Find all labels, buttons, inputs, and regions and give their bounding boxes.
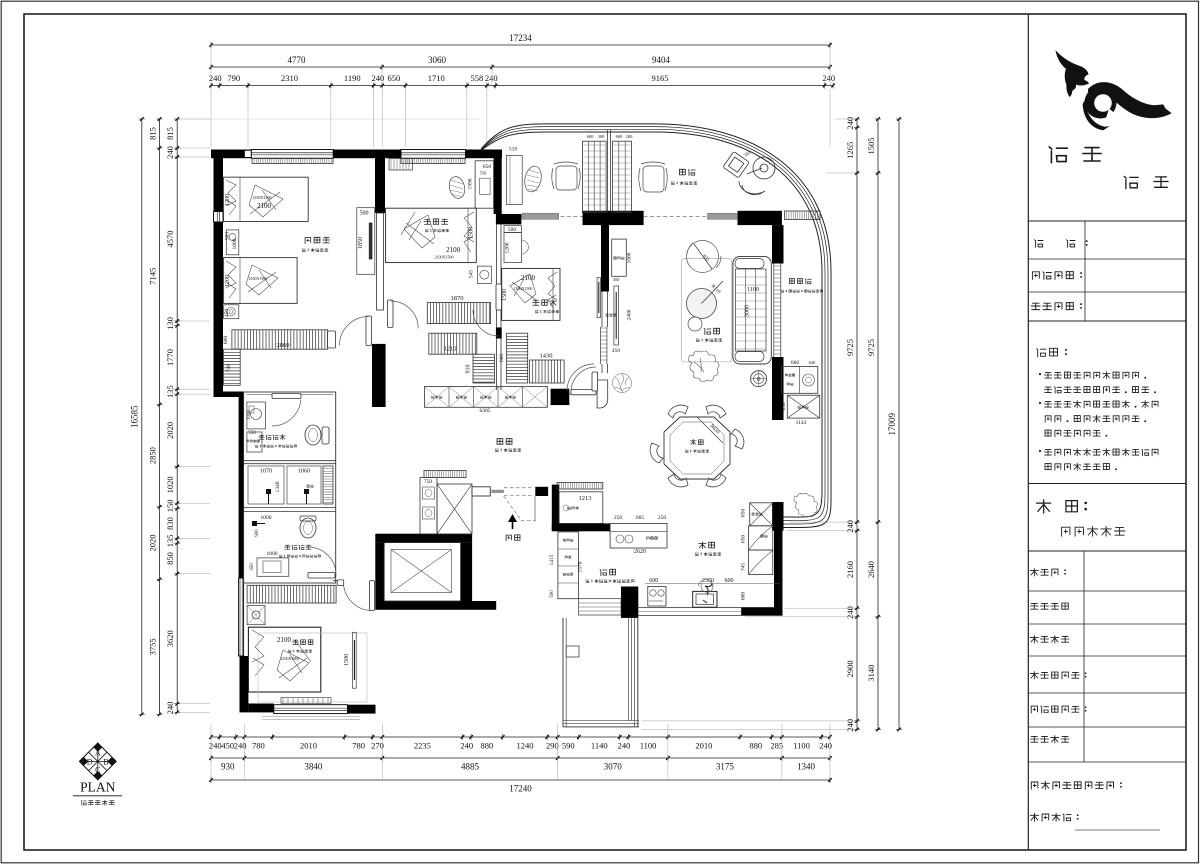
svg-text:135: 135 bbox=[165, 534, 175, 547]
svg-text:850: 850 bbox=[165, 552, 175, 565]
svg-text:685: 685 bbox=[636, 515, 645, 521]
svg-text:9404: 9404 bbox=[652, 55, 671, 65]
svg-text:17009: 17009 bbox=[887, 413, 897, 436]
svg-text:C: C bbox=[95, 766, 100, 775]
svg-text:2010: 2010 bbox=[300, 741, 317, 751]
svg-text:250: 250 bbox=[614, 515, 623, 521]
svg-text:17240: 17240 bbox=[509, 784, 532, 794]
svg-text:3140: 3140 bbox=[866, 665, 876, 682]
svg-text:500: 500 bbox=[508, 227, 517, 233]
svg-text:2100: 2100 bbox=[521, 274, 536, 282]
svg-text:1870: 1870 bbox=[451, 295, 464, 302]
svg-text:600: 600 bbox=[649, 578, 658, 584]
svg-text:1000: 1000 bbox=[267, 551, 278, 557]
svg-text:2860: 2860 bbox=[277, 342, 290, 349]
svg-text:2020: 2020 bbox=[148, 535, 158, 552]
svg-text:1340: 1340 bbox=[275, 481, 281, 492]
svg-text:2850: 2850 bbox=[148, 447, 158, 464]
svg-text:1500: 1500 bbox=[502, 289, 508, 301]
svg-text:3070: 3070 bbox=[604, 762, 623, 772]
svg-text:650: 650 bbox=[741, 535, 747, 544]
svg-text:1140: 1140 bbox=[591, 741, 608, 751]
svg-text:900: 900 bbox=[255, 529, 260, 537]
svg-text:740: 740 bbox=[226, 364, 232, 373]
svg-text:135: 135 bbox=[165, 385, 175, 398]
svg-text:2640: 2640 bbox=[866, 561, 876, 578]
svg-text:2100X1200: 2100X1200 bbox=[253, 195, 272, 200]
svg-text:240: 240 bbox=[618, 741, 631, 751]
svg-text:880: 880 bbox=[552, 503, 558, 512]
svg-text:16585: 16585 bbox=[130, 405, 140, 428]
svg-text:3620: 3620 bbox=[165, 630, 175, 647]
svg-text:240: 240 bbox=[372, 73, 385, 83]
svg-text:450: 450 bbox=[612, 348, 621, 354]
svg-text:1200: 1200 bbox=[225, 275, 231, 287]
svg-text:4885: 4885 bbox=[461, 762, 480, 772]
svg-text:1770: 1770 bbox=[165, 349, 175, 366]
svg-text:2100: 2100 bbox=[446, 246, 461, 254]
svg-text:450: 450 bbox=[221, 741, 234, 751]
svg-text:1100: 1100 bbox=[747, 287, 759, 293]
svg-text:600: 600 bbox=[499, 354, 505, 363]
svg-text:A: A bbox=[95, 749, 101, 758]
svg-text:650: 650 bbox=[387, 73, 400, 83]
svg-text:270: 270 bbox=[371, 741, 384, 751]
svg-text:780: 780 bbox=[352, 741, 365, 751]
svg-text:17234: 17234 bbox=[509, 33, 532, 43]
svg-text:1213: 1213 bbox=[579, 495, 592, 502]
svg-text:650: 650 bbox=[781, 402, 787, 411]
svg-text:1850: 1850 bbox=[358, 237, 364, 249]
svg-text:745: 745 bbox=[741, 563, 747, 572]
svg-text:2100X1800: 2100X1800 bbox=[281, 656, 300, 661]
svg-text:4570: 4570 bbox=[165, 231, 175, 248]
svg-text:1200: 1200 bbox=[505, 242, 511, 253]
svg-text:600: 600 bbox=[741, 592, 747, 601]
svg-text:2100: 2100 bbox=[257, 202, 272, 210]
svg-text:2620: 2620 bbox=[634, 549, 646, 555]
svg-text:2100X1500: 2100X1500 bbox=[514, 286, 533, 291]
svg-text:290: 290 bbox=[546, 741, 559, 751]
svg-text:6305: 6305 bbox=[480, 408, 491, 414]
svg-text:1500: 1500 bbox=[344, 654, 350, 666]
svg-text:1100: 1100 bbox=[793, 741, 810, 751]
svg-text:500: 500 bbox=[360, 211, 369, 217]
svg-text:650: 650 bbox=[741, 509, 747, 518]
svg-text:660: 660 bbox=[791, 360, 800, 366]
svg-text:500: 500 bbox=[550, 590, 555, 598]
svg-text:1000: 1000 bbox=[232, 238, 238, 249]
svg-text:1505: 1505 bbox=[866, 138, 876, 155]
svg-text:519: 519 bbox=[509, 147, 518, 153]
svg-text:930: 930 bbox=[221, 762, 235, 772]
svg-text:B: B bbox=[103, 758, 108, 767]
svg-text:240: 240 bbox=[485, 73, 498, 83]
svg-text:3840: 3840 bbox=[304, 762, 323, 772]
svg-text:1000: 1000 bbox=[247, 410, 252, 421]
svg-text:1200: 1200 bbox=[225, 194, 231, 206]
svg-text:1415: 1415 bbox=[549, 554, 555, 565]
svg-text:1100: 1100 bbox=[640, 741, 657, 751]
svg-text:1020: 1020 bbox=[165, 476, 175, 493]
svg-text:1143: 1143 bbox=[796, 420, 807, 426]
svg-text:1265: 1265 bbox=[845, 142, 855, 159]
svg-text:558: 558 bbox=[471, 73, 484, 83]
svg-text:1240: 1240 bbox=[516, 741, 533, 751]
svg-text:2900: 2900 bbox=[845, 660, 855, 677]
svg-text:790: 790 bbox=[227, 73, 240, 83]
svg-text:1430: 1430 bbox=[540, 353, 553, 360]
svg-text:3060: 3060 bbox=[428, 55, 447, 65]
svg-text:9725: 9725 bbox=[866, 339, 876, 356]
svg-text:285: 285 bbox=[770, 741, 783, 751]
svg-text:545: 545 bbox=[469, 270, 475, 279]
svg-text:240: 240 bbox=[460, 741, 473, 751]
svg-text:910: 910 bbox=[466, 365, 472, 374]
svg-text:2400: 2400 bbox=[627, 309, 633, 320]
svg-text:2100X1500: 2100X1500 bbox=[435, 255, 454, 260]
svg-text:450: 450 bbox=[224, 309, 230, 318]
svg-text:1070: 1070 bbox=[260, 469, 272, 475]
svg-text:2010: 2010 bbox=[695, 741, 712, 751]
svg-text:1000: 1000 bbox=[261, 515, 272, 521]
svg-text:2235: 2235 bbox=[414, 741, 431, 751]
svg-text:2100: 2100 bbox=[277, 636, 292, 644]
svg-text:750: 750 bbox=[424, 479, 433, 485]
svg-text:600: 600 bbox=[616, 134, 624, 139]
svg-text:7145: 7145 bbox=[148, 268, 158, 285]
svg-text:450: 450 bbox=[613, 277, 621, 282]
svg-text:830: 830 bbox=[165, 517, 175, 530]
svg-text:650: 650 bbox=[483, 164, 492, 170]
svg-text:1570: 1570 bbox=[578, 561, 584, 572]
svg-text:880: 880 bbox=[481, 741, 494, 751]
svg-text:150: 150 bbox=[165, 500, 175, 513]
svg-text:200: 200 bbox=[626, 134, 634, 139]
svg-text:2020: 2020 bbox=[165, 422, 175, 439]
svg-text:1990: 1990 bbox=[468, 178, 474, 189]
svg-text:815: 815 bbox=[148, 127, 158, 140]
svg-text:300: 300 bbox=[598, 134, 606, 139]
svg-text:PLAN: PLAN bbox=[80, 780, 116, 795]
svg-text:880: 880 bbox=[749, 741, 762, 751]
svg-text:D: D bbox=[87, 758, 93, 767]
svg-text:1210: 1210 bbox=[444, 346, 457, 353]
svg-text:4770: 4770 bbox=[288, 55, 307, 65]
svg-text:1340: 1340 bbox=[797, 762, 816, 772]
svg-text:503: 503 bbox=[225, 232, 231, 241]
svg-text:1710: 1710 bbox=[428, 73, 445, 83]
svg-text:2100X1500: 2100X1500 bbox=[249, 276, 268, 281]
svg-text:240: 240 bbox=[165, 146, 175, 159]
svg-text:240: 240 bbox=[822, 73, 835, 83]
svg-text:9165: 9165 bbox=[652, 73, 669, 83]
svg-text:3000: 3000 bbox=[745, 305, 751, 317]
svg-text:130: 130 bbox=[165, 317, 175, 330]
svg-text:1000: 1000 bbox=[627, 252, 633, 263]
svg-text:1060: 1060 bbox=[298, 469, 310, 475]
svg-text:3755: 3755 bbox=[148, 638, 158, 655]
svg-text:600: 600 bbox=[725, 578, 734, 584]
svg-text:600: 600 bbox=[223, 336, 229, 345]
svg-text:250: 250 bbox=[658, 515, 667, 521]
svg-text:2310: 2310 bbox=[281, 73, 298, 83]
svg-text:2160: 2160 bbox=[845, 561, 855, 578]
svg-text:600: 600 bbox=[587, 134, 595, 139]
svg-text:1500: 1500 bbox=[469, 227, 475, 239]
svg-text:9725: 9725 bbox=[845, 339, 855, 356]
svg-text:590: 590 bbox=[562, 741, 575, 751]
svg-text:3175: 3175 bbox=[716, 762, 735, 772]
svg-text:780: 780 bbox=[252, 741, 265, 751]
svg-text:640: 640 bbox=[809, 360, 817, 365]
svg-text:550: 550 bbox=[480, 171, 488, 176]
svg-text:240: 240 bbox=[165, 702, 175, 715]
svg-text:350: 350 bbox=[250, 563, 255, 571]
svg-text:815: 815 bbox=[165, 127, 175, 140]
svg-text:1190: 1190 bbox=[344, 73, 361, 83]
